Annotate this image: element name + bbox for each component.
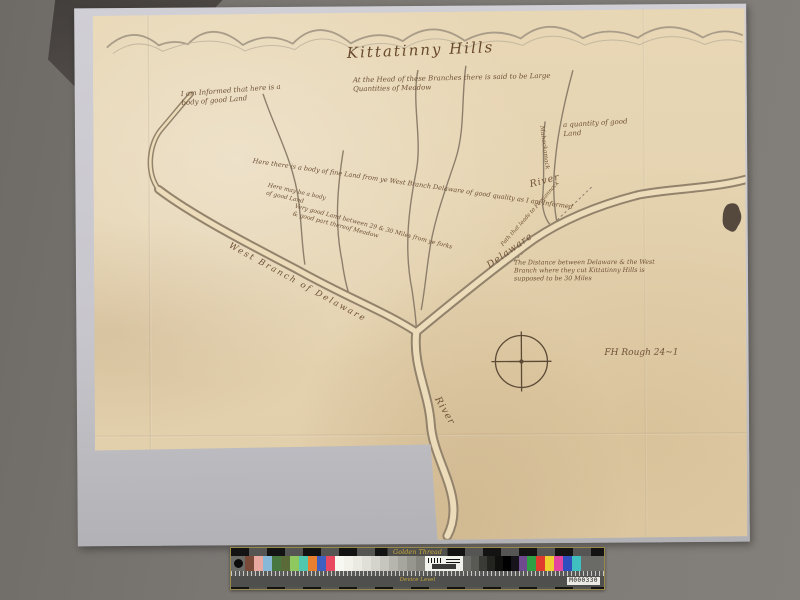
resolution-bars-horizontal [446,558,460,563]
color-patch [554,556,563,571]
grayscale-ramp-group [335,556,425,571]
color-patch [545,556,554,571]
color-patch [317,556,326,571]
color-patch [511,556,519,571]
resolution-density-block [432,564,456,569]
calibration-target: Golden Thread Device Level M000330 [230,547,605,590]
compass-rose [491,331,551,391]
calibration-brand-label: Golden Thread [387,548,448,556]
dark-patch-group [471,556,527,571]
color-patch [263,556,272,571]
photograph-stage: Kittatinny Hills At the Head of these Br… [0,0,800,600]
distance-note: The Distance between Delaware & the West… [514,259,674,284]
calibration-dash-strip: Golden Thread [231,548,604,556]
color-patch [495,556,503,571]
color-patch-group-right [527,556,581,571]
color-patch [527,556,536,571]
color-patch-group-left [245,556,335,571]
color-patch [371,556,380,571]
calibration-patch-row [231,556,604,571]
color-patch [326,556,335,571]
calibration-spacer [463,556,471,571]
color-patch [272,556,281,571]
calibration-subtitle-label: Device Level [400,577,436,583]
color-patch [254,556,263,571]
color-patch [398,556,407,571]
color-patch [536,556,545,571]
calibration-tail [581,556,604,571]
color-patch [563,556,572,571]
color-patch [380,556,389,571]
color-patch [353,556,362,571]
delaware-river-upper [416,179,748,332]
color-patch [299,556,308,571]
signature-note: FH Rough 24~1 [604,348,678,360]
color-patch [344,556,353,571]
black-dot-icon [234,559,243,568]
color-patch [416,556,425,571]
color-patch [572,556,581,571]
color-patch [308,556,317,571]
west-branch-upper [150,94,192,189]
color-patch [281,556,290,571]
paper-blemish [723,203,742,232]
color-patch [503,556,511,571]
color-patch [335,556,344,571]
color-patch [479,556,487,571]
calibration-serial-label: M000330 [567,577,600,585]
calibration-dot-cell [231,556,245,571]
calibration-bottom-strip: Device Level M000330 [231,576,604,589]
color-patch [290,556,299,571]
color-patch [471,556,479,571]
color-patch [487,556,495,571]
color-patch [407,556,416,571]
color-patch [389,556,398,571]
resolution-bars-vertical [428,558,442,563]
color-patch [519,556,527,571]
color-patch [362,556,371,571]
resolution-target [425,556,463,571]
color-patch [245,556,254,571]
